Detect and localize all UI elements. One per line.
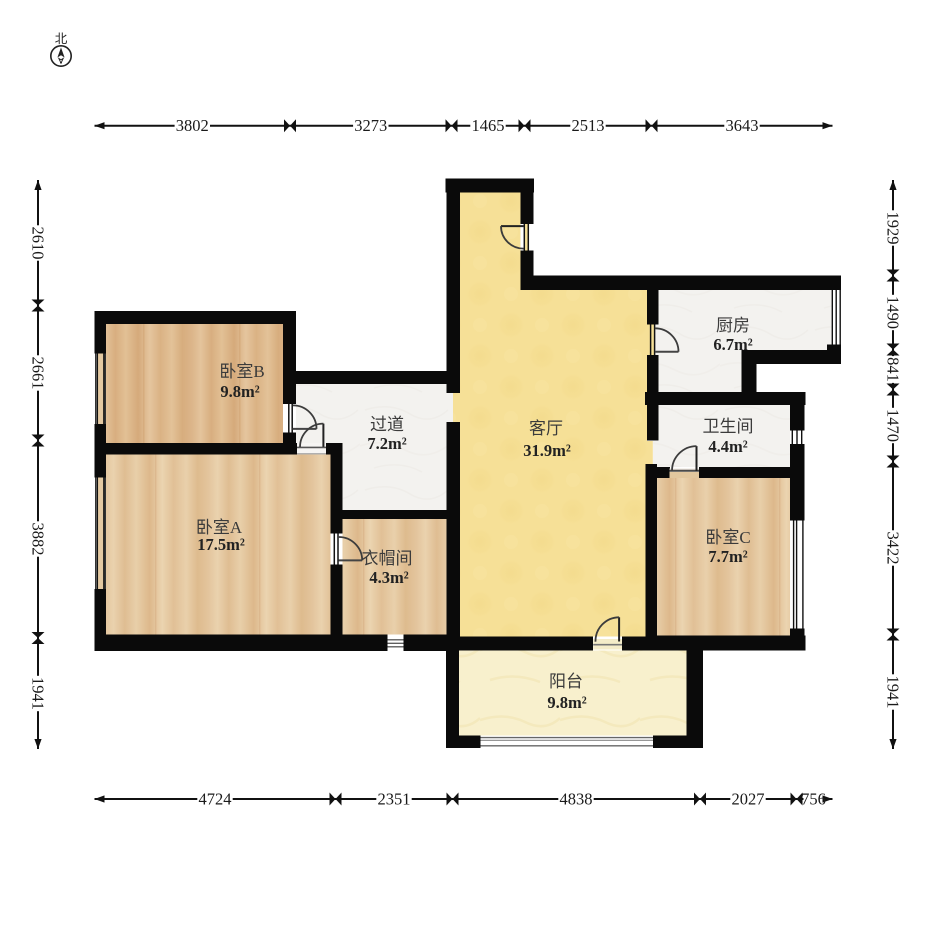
svg-text:1470: 1470	[884, 409, 903, 442]
svg-text:3643: 3643	[726, 116, 759, 135]
svg-text:1941: 1941	[29, 677, 48, 710]
svg-text:北: 北	[55, 32, 68, 46]
svg-text:1490: 1490	[884, 296, 903, 329]
svg-text:2351: 2351	[378, 790, 411, 809]
svg-text:过道: 过道	[370, 415, 404, 434]
svg-text:1941: 1941	[884, 676, 903, 709]
svg-text:841: 841	[884, 357, 903, 382]
svg-text:4724: 4724	[199, 790, 232, 809]
svg-text:3273: 3273	[354, 116, 387, 135]
svg-text:2610: 2610	[29, 227, 48, 260]
svg-text:2513: 2513	[572, 116, 605, 135]
svg-text:1929: 1929	[884, 212, 903, 245]
svg-text:7.7m²: 7.7m²	[708, 547, 747, 566]
svg-text:2661: 2661	[29, 357, 48, 390]
svg-text:厨房: 厨房	[716, 316, 750, 335]
svg-text:4.4m²: 4.4m²	[708, 437, 747, 456]
svg-text:9.8m²: 9.8m²	[547, 693, 586, 712]
svg-text:17.5m²: 17.5m²	[197, 535, 245, 554]
svg-text:3802: 3802	[176, 116, 209, 135]
svg-text:3422: 3422	[884, 532, 903, 565]
svg-text:31.9m²: 31.9m²	[523, 441, 571, 460]
svg-text:2027: 2027	[732, 790, 765, 809]
svg-text:客厅: 客厅	[529, 419, 563, 438]
svg-text:1465: 1465	[472, 116, 505, 135]
svg-text:卧室B: 卧室B	[219, 362, 264, 381]
svg-text:卫生间: 卫生间	[703, 417, 754, 436]
svg-text:3882: 3882	[29, 523, 48, 556]
svg-text:756: 756	[801, 790, 826, 809]
svg-text:4838: 4838	[560, 790, 593, 809]
svg-text:7.2m²: 7.2m²	[367, 434, 406, 453]
svg-text:卧室C: 卧室C	[705, 528, 750, 547]
svg-text:阳台: 阳台	[549, 672, 583, 691]
svg-text:9.8m²: 9.8m²	[220, 382, 259, 401]
svg-text:衣帽间: 衣帽间	[362, 549, 413, 568]
svg-text:4.3m²: 4.3m²	[369, 568, 408, 587]
svg-text:6.7m²: 6.7m²	[713, 335, 752, 354]
